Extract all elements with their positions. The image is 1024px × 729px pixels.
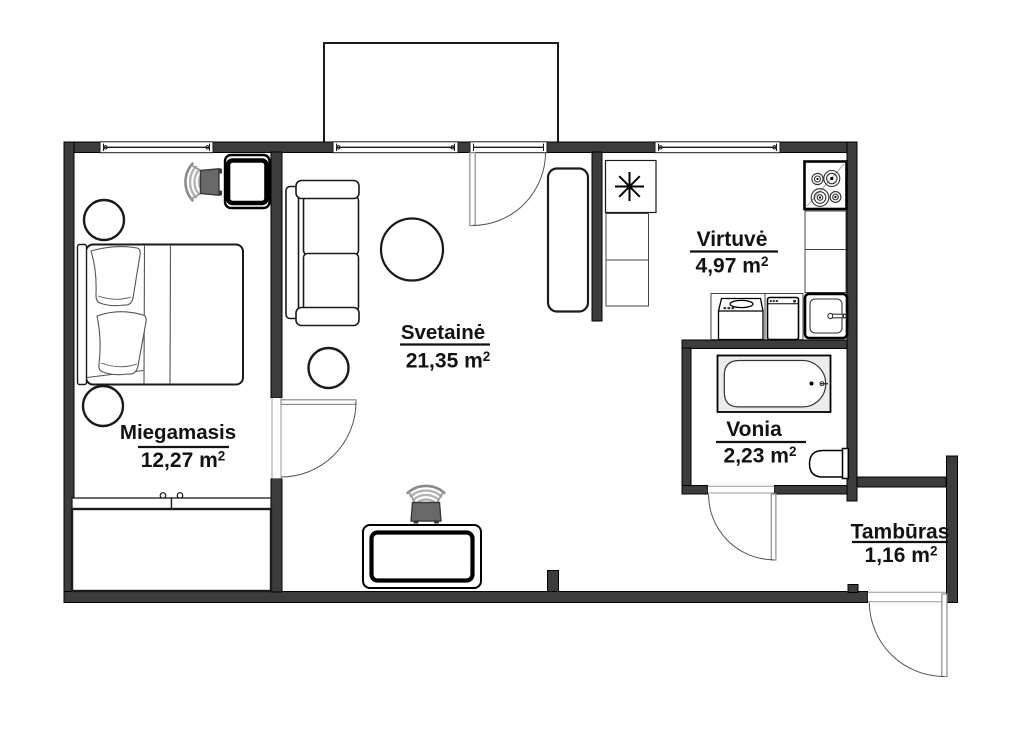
svg-text:Vonia: Vonia <box>726 418 782 441</box>
svg-text:Miegamasis: Miegamasis <box>120 421 236 444</box>
svg-text:12,27 m2: 12,27 m2 <box>141 449 226 473</box>
svg-text:Virtuvė: Virtuvė <box>697 228 768 251</box>
svg-text:2,23 m2: 2,23 m2 <box>724 444 797 468</box>
svg-text:21,35 m2: 21,35 m2 <box>406 349 491 373</box>
svg-text:1,16 m2: 1,16 m2 <box>865 544 938 568</box>
svg-text:4,97 m2: 4,97 m2 <box>696 254 769 278</box>
svg-text:Svetainė: Svetainė <box>401 321 485 344</box>
svg-text:Tambūras: Tambūras <box>851 521 950 544</box>
